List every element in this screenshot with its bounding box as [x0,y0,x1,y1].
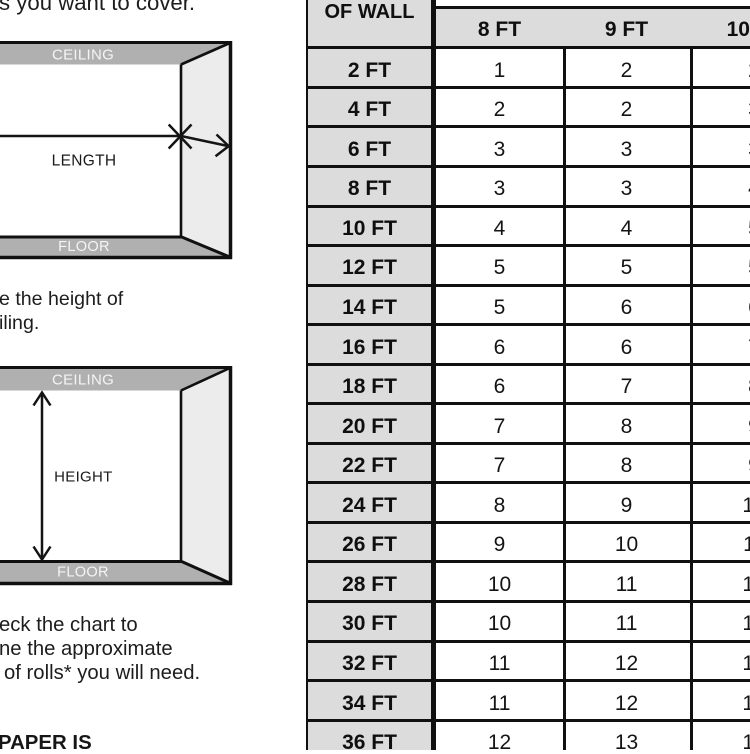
svg-text:FLOOR: FLOOR [57,564,109,580]
svg-text:CEILING: CEILING [52,371,114,388]
svg-text:CEILING: CEILING [52,46,114,63]
svg-text:LENGTH: LENGTH [52,153,117,170]
svg-text:FLOOR: FLOOR [58,239,110,255]
svg-text:HEIGHT: HEIGHT [54,469,112,486]
